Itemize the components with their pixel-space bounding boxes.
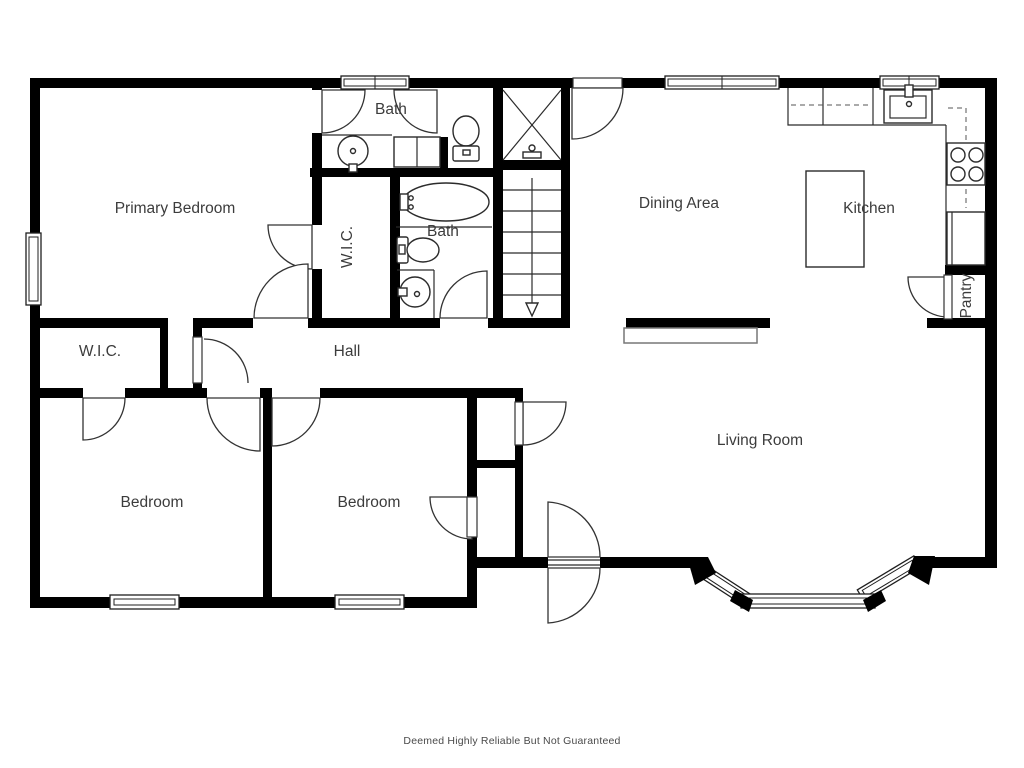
staircase-icon <box>503 178 561 316</box>
bathroom-vanity <box>322 135 440 172</box>
room-label-kitchen: Kitchen <box>843 200 895 217</box>
door-swing-icon <box>440 271 487 318</box>
window-icon <box>341 76 409 89</box>
door-swing-icon <box>523 402 566 445</box>
door-leaf <box>467 497 477 537</box>
walls-layer <box>30 78 997 608</box>
room-label-pantry: Pantry <box>958 273 975 318</box>
stove-icon <box>947 143 985 185</box>
room-label-bedroom-mid: Bedroom <box>338 494 401 511</box>
door-swing-icon <box>207 398 260 451</box>
floor-plan-page: Primary Bedroom Bath Bath W.I.C. W.I.C. … <box>0 0 1024 768</box>
kitchen-sink-icon <box>884 85 932 123</box>
window-icon <box>110 595 179 609</box>
door-swing-icon <box>548 568 600 623</box>
door-swing-icon <box>272 398 320 446</box>
room-label-wic-primary: W.I.C. <box>339 226 356 268</box>
door-leaf <box>944 275 952 319</box>
window-icon <box>665 76 779 89</box>
room-label-primary-bedroom: Primary Bedroom <box>115 200 236 217</box>
floor-plan: Primary Bedroom Bath Bath W.I.C. W.I.C. … <box>0 0 1024 768</box>
room-label-dining: Dining Area <box>639 195 720 212</box>
room-label-wic-hall: W.I.C. <box>79 343 121 360</box>
window-icon <box>26 233 41 305</box>
kitchen-island <box>806 171 864 267</box>
door-leaf <box>193 337 202 383</box>
door-swing-icon <box>430 497 472 539</box>
door-swing-icon <box>572 88 623 139</box>
toilet-icon <box>453 116 479 161</box>
room-label-bath-upper: Bath <box>375 101 407 118</box>
room-label-hall: Hall <box>334 343 361 360</box>
door-swing-icon <box>204 339 248 383</box>
exterior-door-leaf <box>573 78 622 88</box>
window-icon <box>335 595 404 609</box>
door-swing-icon <box>268 225 312 269</box>
cabinet-icon <box>394 137 440 167</box>
disclaimer-text: Deemed Highly Reliable But Not Guarantee… <box>0 735 1024 747</box>
door-swing-icon <box>254 264 308 318</box>
bathtub-icon <box>396 183 492 227</box>
door-swing-icon <box>83 398 125 440</box>
half-wall <box>624 328 757 343</box>
room-label-living: Living Room <box>717 432 803 449</box>
shower-icon <box>503 90 561 160</box>
door-swing-icon <box>548 502 600 557</box>
door-leaf <box>515 402 523 445</box>
toilet-icon <box>397 237 439 263</box>
pantry-door-swing-icon <box>908 277 948 317</box>
room-label-bedroom-left: Bedroom <box>121 494 184 511</box>
door-swing-icon <box>322 90 365 133</box>
sink-icon <box>397 270 434 318</box>
room-label-bath-hall: Bath <box>427 223 459 240</box>
stairs-down-arrow-icon <box>526 303 538 316</box>
refrigerator-icon <box>947 212 985 265</box>
sink-icon <box>338 136 368 172</box>
bay-window <box>687 556 935 612</box>
